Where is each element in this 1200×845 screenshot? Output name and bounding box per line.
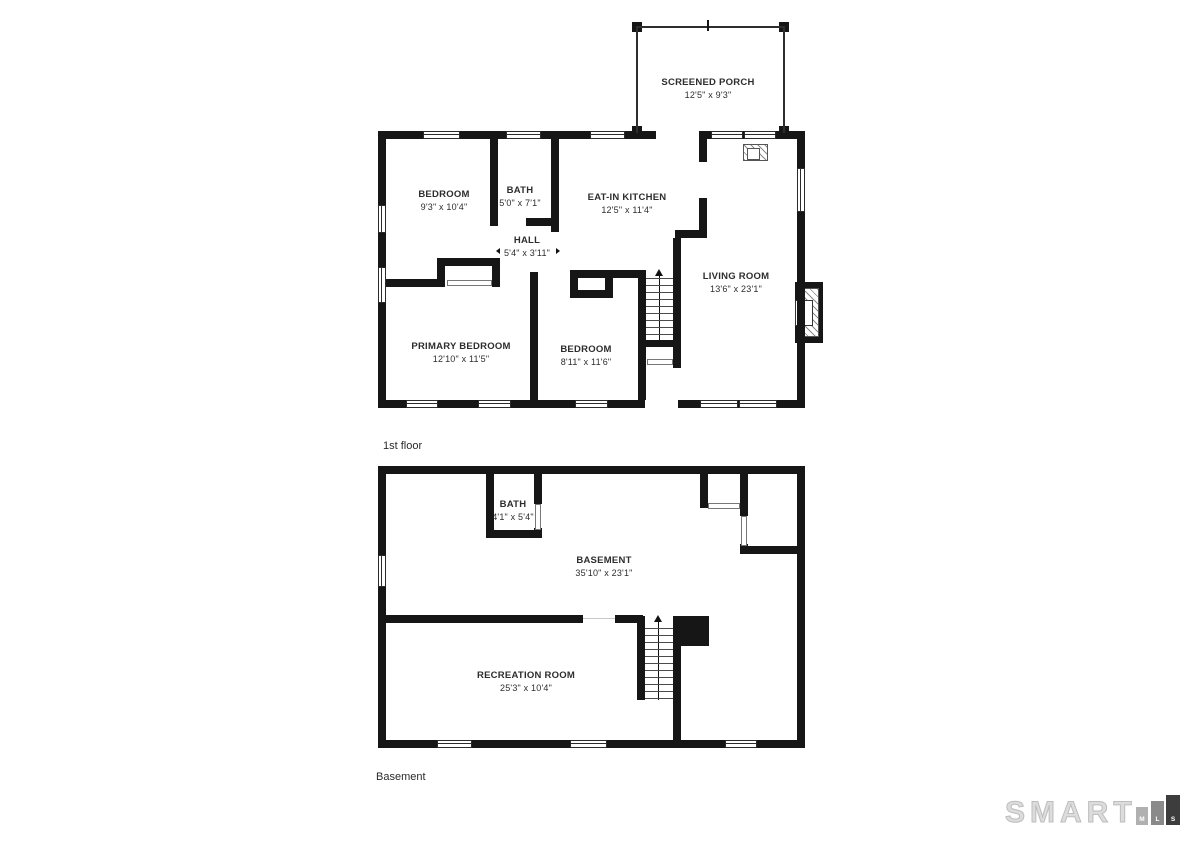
room-label-primary-bedroom: PRIMARY BEDROOM 12'10" x 11'5" bbox=[411, 341, 510, 365]
room-name: SCREENED PORCH bbox=[661, 77, 754, 89]
wall bbox=[492, 258, 500, 287]
wall bbox=[740, 474, 748, 516]
room-dims: 12'5" x 11'4" bbox=[588, 204, 667, 216]
wall bbox=[378, 466, 805, 474]
door bbox=[647, 359, 673, 365]
room-dims: 5'0" x 7'1" bbox=[499, 197, 541, 209]
window bbox=[700, 400, 738, 408]
porch-screen-wall bbox=[637, 26, 784, 28]
wall bbox=[605, 270, 613, 298]
room-dims: 5'4" x 3'11" bbox=[504, 247, 550, 259]
door-swing-arrow-icon bbox=[496, 248, 500, 254]
chimney-flue bbox=[747, 148, 760, 160]
room-dims: 8'11" x 11'6" bbox=[560, 356, 611, 368]
door bbox=[708, 503, 740, 509]
window bbox=[378, 555, 386, 587]
cased-opening bbox=[583, 618, 615, 619]
room-dims: 35'10" x 23'1" bbox=[575, 567, 632, 579]
logo-block-l: L bbox=[1151, 801, 1164, 825]
room-name: BATH bbox=[492, 499, 534, 511]
wall bbox=[490, 139, 498, 226]
porch-screen-wall bbox=[636, 26, 638, 133]
room-label-screened-porch: SCREENED PORCH 12'5" x 9'3" bbox=[661, 77, 754, 101]
room-name: BATH bbox=[499, 185, 541, 197]
wall bbox=[673, 238, 681, 368]
room-label-bath: BATH 5'0" x 7'1" bbox=[499, 185, 541, 209]
window bbox=[478, 400, 511, 408]
door-swing-arrow-icon bbox=[556, 248, 560, 254]
wall bbox=[740, 546, 805, 554]
window bbox=[378, 205, 386, 233]
room-label-eat-in-kitchen: EAT-IN KITCHEN 12'5" x 11'4" bbox=[588, 192, 667, 216]
wall bbox=[638, 340, 681, 347]
room-dims: 25'3" x 10'4" bbox=[477, 682, 575, 694]
room-label-bedroom2: BEDROOM 8'11" x 11'6" bbox=[560, 344, 611, 368]
porch-door-tick bbox=[707, 20, 709, 31]
room-label-living-room: LIVING ROOM 13'6" x 23'1" bbox=[703, 271, 770, 295]
window bbox=[423, 131, 460, 139]
wall bbox=[378, 466, 386, 748]
wall bbox=[534, 474, 542, 504]
wall bbox=[386, 279, 445, 287]
wall bbox=[530, 272, 538, 400]
room-label-basement: BASEMENT 35'10" x 23'1" bbox=[575, 555, 632, 579]
room-name: BEDROOM bbox=[560, 344, 611, 356]
room-dims: 13'6" x 23'1" bbox=[703, 283, 770, 295]
wall bbox=[386, 615, 583, 623]
room-label-basement-bath: BATH 4'1" x 5'4" bbox=[492, 499, 534, 523]
room-label-recreation-room: RECREATION ROOM 25'3" x 10'4" bbox=[477, 670, 575, 694]
window bbox=[570, 740, 607, 748]
room-label-hall: HALL 5'4" x 3'11" bbox=[504, 235, 550, 259]
porch-screen-wall bbox=[783, 26, 785, 133]
room-dims: 9'3" x 10'4" bbox=[418, 201, 469, 213]
window bbox=[378, 267, 386, 303]
room-name: LIVING ROOM bbox=[703, 271, 770, 283]
logo-block-m: M bbox=[1136, 807, 1148, 825]
room-name: HALL bbox=[504, 235, 550, 247]
wall bbox=[700, 474, 708, 508]
window bbox=[739, 400, 777, 408]
logo-block-s: S bbox=[1166, 795, 1180, 825]
window bbox=[406, 400, 438, 408]
room-name: PRIMARY BEDROOM bbox=[411, 341, 510, 353]
wall bbox=[486, 474, 494, 538]
wall bbox=[797, 466, 805, 748]
room-dims: 4'1" x 5'4" bbox=[492, 511, 534, 523]
wall bbox=[637, 616, 645, 700]
floorplan-canvas: SCREENED PORCH 12'5" x 9'3" BEDROOM 9'3"… bbox=[0, 0, 1200, 845]
window bbox=[744, 131, 776, 139]
window bbox=[506, 131, 541, 139]
wall bbox=[699, 139, 707, 162]
basement-caption: Basement bbox=[376, 771, 426, 783]
room-name: BASEMENT bbox=[575, 555, 632, 567]
wall bbox=[673, 616, 681, 748]
wall bbox=[638, 270, 646, 400]
room-name: RECREATION ROOM bbox=[477, 670, 575, 682]
door bbox=[447, 280, 492, 286]
floor1-caption: 1st floor bbox=[383, 440, 422, 452]
smartmls-wordmark: SMART bbox=[1005, 799, 1137, 827]
wall bbox=[675, 230, 707, 238]
window bbox=[797, 168, 805, 212]
room-dims: 12'5" x 9'3" bbox=[661, 89, 754, 101]
room-name: EAT-IN KITCHEN bbox=[588, 192, 667, 204]
staircase-basement bbox=[645, 628, 673, 700]
window bbox=[590, 131, 625, 139]
door bbox=[535, 504, 541, 530]
staircase-first-floor bbox=[646, 278, 673, 340]
window bbox=[725, 740, 757, 748]
wall bbox=[526, 218, 559, 226]
window bbox=[437, 740, 472, 748]
masonry-block bbox=[681, 616, 709, 646]
room-name: BEDROOM bbox=[418, 189, 469, 201]
door bbox=[741, 516, 747, 546]
window bbox=[575, 400, 608, 408]
window bbox=[711, 131, 743, 139]
wall bbox=[486, 530, 542, 538]
room-dims: 12'10" x 11'5" bbox=[411, 353, 510, 365]
room-label-bedroom: BEDROOM 9'3" x 10'4" bbox=[418, 189, 469, 213]
